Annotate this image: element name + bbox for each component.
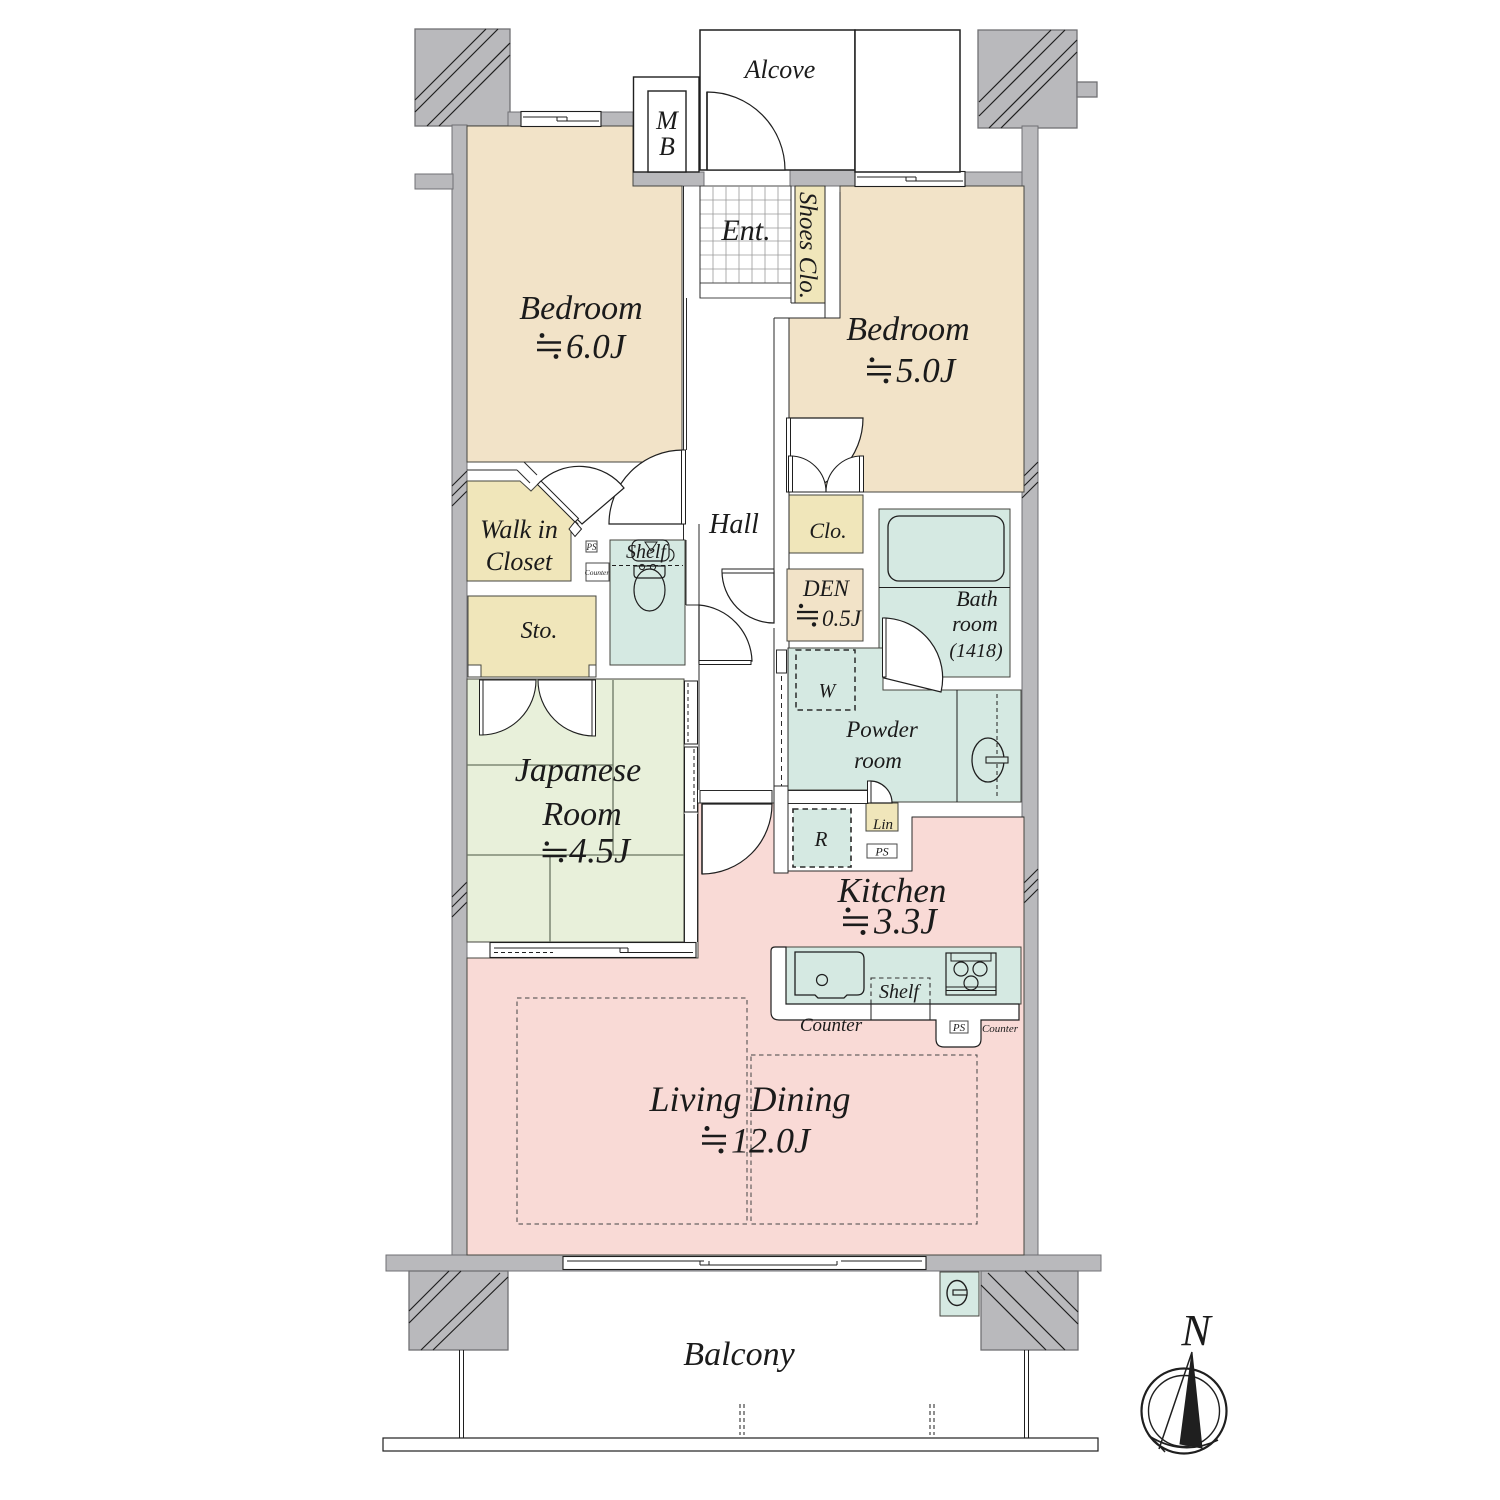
svg-text:Powder: Powder: [845, 717, 919, 742]
svg-text:Sto.: Sto.: [521, 618, 558, 644]
svg-text:Walk in: Walk in: [480, 515, 558, 544]
svg-text:Counter: Counter: [800, 1015, 863, 1036]
svg-text:4.5J: 4.5J: [569, 831, 632, 871]
svg-text:B: B: [659, 132, 675, 161]
svg-text:Closet: Closet: [486, 547, 553, 576]
svg-text:PS: PS: [586, 542, 597, 552]
svg-text:Lin: Lin: [872, 817, 893, 833]
svg-text:PS: PS: [952, 1022, 966, 1034]
svg-text:5.0J: 5.0J: [896, 351, 957, 390]
svg-text:6.0J: 6.0J: [566, 327, 627, 366]
svg-text:Counter: Counter: [982, 1023, 1019, 1035]
svg-text:R: R: [814, 827, 828, 851]
svg-text:W: W: [819, 680, 838, 702]
svg-text:Shelf: Shelf: [879, 981, 921, 1003]
svg-text:Balcony: Balcony: [683, 1336, 795, 1373]
svg-text:Shoes Clo.: Shoes Clo.: [794, 192, 821, 299]
svg-text:N: N: [1180, 1306, 1213, 1355]
svg-text:Clo.: Clo.: [809, 518, 846, 543]
svg-text:PS: PS: [874, 845, 888, 859]
svg-text:Bedroom: Bedroom: [846, 311, 969, 348]
svg-text:Alcove: Alcove: [743, 55, 816, 84]
svg-text:Bedroom: Bedroom: [519, 290, 642, 327]
svg-text:room: room: [854, 748, 902, 773]
svg-text:Japanese: Japanese: [515, 752, 642, 789]
svg-text:Counter: Counter: [585, 568, 610, 577]
svg-text:Bath: Bath: [956, 586, 998, 611]
svg-text:room: room: [952, 611, 998, 636]
svg-text:Hall: Hall: [708, 509, 759, 540]
svg-text:M: M: [655, 106, 679, 135]
svg-text:(1418): (1418): [949, 640, 1003, 662]
svg-text:0.5J: 0.5J: [822, 606, 863, 631]
svg-text:Shelf: Shelf: [626, 541, 668, 563]
svg-text:Room: Room: [541, 796, 621, 833]
svg-text:Ent.: Ent.: [720, 214, 770, 247]
svg-text:Living Dining: Living Dining: [648, 1079, 850, 1119]
svg-text:3.3J: 3.3J: [873, 902, 938, 943]
svg-text:DEN: DEN: [802, 576, 851, 601]
svg-text:12.0J: 12.0J: [731, 1121, 812, 1161]
